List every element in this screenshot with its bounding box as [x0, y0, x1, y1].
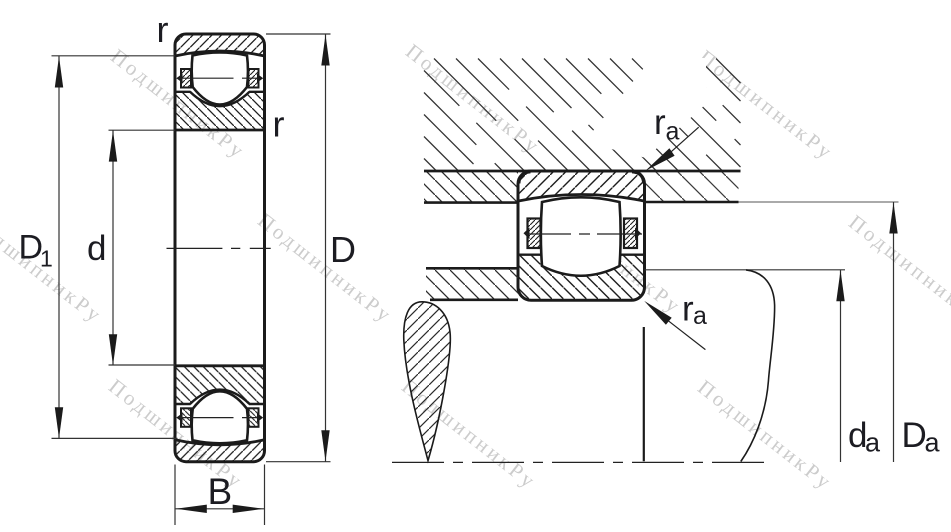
svg-text:a: a	[693, 302, 707, 330]
svg-text:a: a	[925, 428, 941, 458]
svg-text:ПодшипникРу: ПодшипникРу	[693, 375, 837, 495]
svg-text:a: a	[865, 428, 881, 458]
svg-text:B: B	[208, 471, 233, 512]
svg-text:1: 1	[40, 246, 53, 272]
svg-text:D: D	[902, 416, 927, 455]
svg-text:d: d	[87, 229, 106, 268]
svg-text:ПодшипникРу: ПодшипникРу	[844, 210, 951, 330]
svg-text:r: r	[273, 104, 285, 145]
svg-text:ПодшипникРу: ПодшипникРу	[694, 45, 838, 165]
svg-text:ПодшипникРу: ПодшипникРу	[0, 208, 108, 328]
svg-text:D: D	[330, 229, 356, 270]
svg-text:a: a	[666, 118, 680, 146]
svg-text:r: r	[157, 9, 169, 50]
svg-text:r: r	[654, 103, 666, 142]
